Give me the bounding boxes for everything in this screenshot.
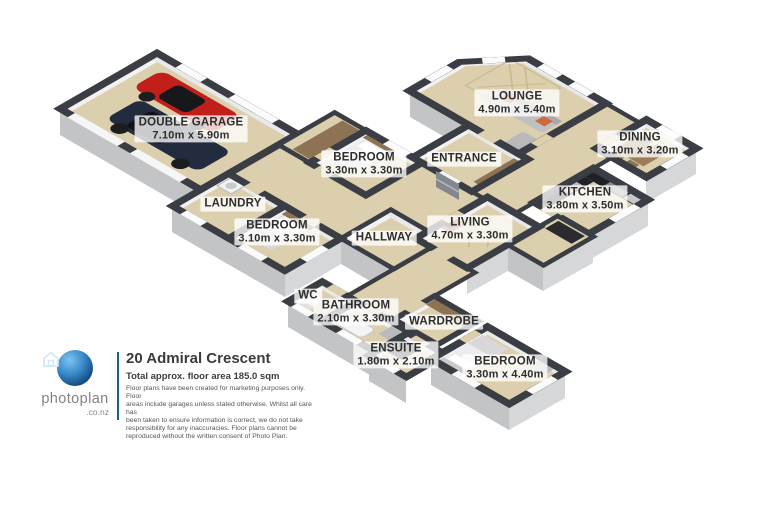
brand-name: photoplan — [39, 392, 111, 407]
house-icon — [39, 348, 63, 372]
floor-area-text: Total approx. floor area 185.0 sqm — [126, 371, 312, 382]
brand-suffix: .co.nz — [39, 407, 111, 417]
room-label-dining: DINING3.10m x 3.20m — [597, 130, 682, 157]
footer-text-column: 20 Admiral Crescent Total approx. floor … — [126, 348, 312, 442]
room-label-ensuite: ENSUITE1.80m x 2.10m — [353, 341, 438, 368]
footer-divider — [117, 352, 119, 420]
room-label-bathroom: BATHROOM2.10m x 3.30m — [313, 298, 398, 325]
room-label-double-garage: DOUBLE GARAGE7.10m x 5.90m — [135, 115, 248, 142]
room-label-living: LIVING4.70m x 3.30m — [427, 215, 512, 242]
floorplan-page: DOUBLE GARAGE7.10m x 5.90mBEDROOM3.30m x… — [0, 0, 768, 512]
room-label-lounge: LOUNGE4.90m x 5.40m — [474, 89, 559, 116]
room-label-kitchen: KITCHEN3.80m x 3.50m — [542, 185, 627, 212]
room-label-bedroom-3: BEDROOM3.30m x 4.40m — [462, 354, 547, 381]
disclaimer-text: Floor plans have been created for market… — [126, 385, 312, 442]
room-label-laundry: LAUNDRY — [200, 197, 265, 212]
photoplan-logo-column: photoplan .co.nz — [39, 348, 111, 442]
room-label-wardrobe: WARDROBE — [405, 315, 483, 330]
room-label-entrance: ENTRANCE — [427, 152, 501, 167]
room-label-hallway: HALLWAY — [352, 231, 417, 246]
room-label-bedroom-2: BEDROOM3.10m x 3.30m — [234, 218, 319, 245]
footer-branding: photoplan .co.nz 20 Admiral Crescent Tot… — [39, 348, 312, 442]
photoplan-logo — [57, 350, 93, 386]
property-address: 20 Admiral Crescent — [126, 351, 312, 368]
room-label-bedroom-1: BEDROOM3.30m x 3.30m — [321, 150, 406, 177]
